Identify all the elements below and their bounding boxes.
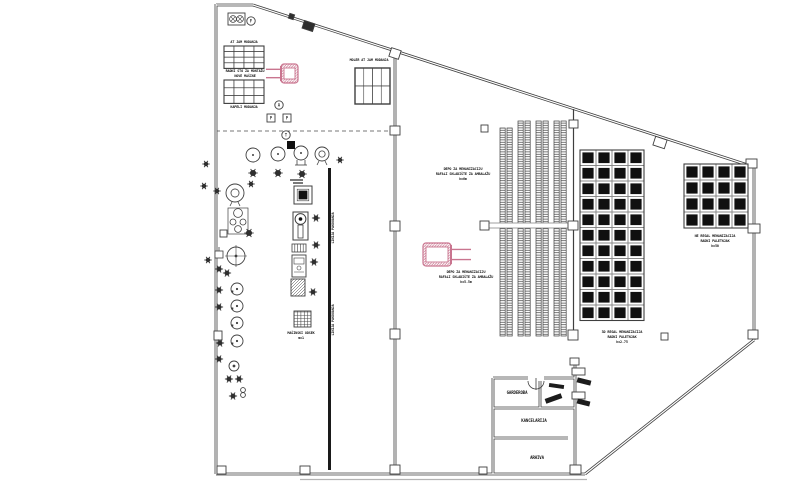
storage-cell-fill — [614, 276, 625, 287]
fan-unit-icon — [228, 13, 245, 25]
machine-notch-circle-icon — [231, 317, 243, 329]
storage-cell-fill — [702, 198, 713, 209]
grid-cell — [254, 88, 264, 96]
grid-cell — [234, 88, 244, 96]
pallet-rack — [543, 121, 548, 336]
machine-gear-icon — [244, 229, 253, 237]
storage-cell-fill — [630, 230, 641, 241]
storage-cell-fill — [598, 199, 609, 210]
storage-cell-fill — [702, 214, 713, 225]
storage-cell-fill — [686, 214, 697, 225]
column-marker — [300, 466, 310, 474]
grid-cell — [244, 52, 254, 58]
floor-plan-canvas: FAPPTAT JAM MODANJARADNI STO ZA MONTAŽUN… — [0, 0, 800, 500]
floor-label: RADNI PALETNJAK — [700, 239, 730, 243]
column-marker — [661, 333, 668, 340]
grid-cell — [234, 52, 244, 58]
forklift-icon — [423, 243, 471, 266]
storage-cell-fill — [598, 168, 609, 179]
floor-label: AT JAM MODANJA — [230, 40, 257, 44]
forklift-icon — [266, 64, 298, 83]
storage-cell-fill — [582, 307, 593, 318]
machine-notch-circle-icon — [231, 335, 243, 347]
machine-gear-icon — [235, 375, 243, 382]
storage-cell-fill — [630, 245, 641, 256]
floor-label: h=50 — [711, 244, 719, 248]
grid-cell — [224, 46, 234, 52]
machine-gear-icon — [223, 269, 231, 276]
storage-cell-fill — [614, 245, 625, 256]
column-marker — [389, 48, 401, 60]
grid-cell — [224, 96, 234, 104]
grid-cell — [254, 57, 264, 63]
column-marker — [570, 465, 581, 474]
grid-cell — [254, 80, 264, 88]
machine-notch-circle-icon — [231, 300, 243, 312]
storage-cell-fill — [582, 199, 593, 210]
storage-cell-fill — [614, 199, 625, 210]
storage-cell-fill — [598, 245, 609, 256]
storage-cell-fill — [630, 168, 641, 179]
storage-cell-fill — [598, 230, 609, 241]
storage-cell-fill — [582, 292, 593, 303]
circled-letter-icon: T — [282, 131, 290, 139]
pallet-rack — [554, 121, 559, 336]
storage-cell-fill — [614, 168, 625, 179]
machines-layer: FAPPT — [200, 13, 343, 400]
storage-cell-fill — [582, 261, 593, 272]
column-marker — [480, 221, 489, 230]
grid-cell — [244, 57, 254, 63]
machine-gear-icon — [297, 170, 306, 178]
grid-cell — [254, 52, 264, 58]
storage-cell-fill — [630, 276, 641, 287]
storage-cell-fill — [718, 214, 729, 225]
door-leaf — [577, 377, 592, 385]
machine-gear-icon — [229, 392, 237, 399]
storage-grid-window — [355, 68, 390, 104]
machine-circle-icon — [271, 147, 285, 161]
floor-label: WC — [554, 395, 558, 399]
machine-grid-icon — [294, 311, 311, 327]
circled-letter-icon: A — [275, 101, 283, 109]
floor-label: KAPELI MODANJA — [230, 105, 257, 109]
storage-cell-fill — [582, 168, 593, 179]
storage-cell-fill — [734, 166, 745, 177]
storage-cell-fill — [630, 292, 641, 303]
wall-core — [585, 340, 754, 474]
grid-cell — [244, 46, 254, 52]
grid-cell — [224, 57, 234, 63]
machine-striped-icon — [292, 244, 306, 252]
storage-grid-pallet-top-a — [224, 46, 264, 68]
machine-gear-icon — [273, 169, 282, 177]
storage-cell-fill — [598, 152, 609, 163]
floor-label: NOVE MAŠINE — [234, 73, 255, 78]
grid-cell — [234, 96, 244, 104]
storage-cell-fill — [598, 183, 609, 194]
floor-label: MAŠINSKI ODSEK — [287, 330, 315, 335]
grid-cell — [244, 88, 254, 96]
dark-square-icon — [287, 141, 295, 149]
machine-stand-circle-icon — [294, 146, 308, 165]
pallet-rack — [536, 121, 541, 336]
column-marker — [390, 221, 400, 231]
column-marker — [568, 221, 578, 230]
floor-label: 3D REGAL MEHANIZACIJA — [602, 330, 643, 334]
machine-circle-icon — [246, 148, 260, 162]
storage-cell-fill — [582, 276, 593, 287]
storage-cell-fill — [734, 214, 745, 225]
column-marker — [390, 126, 400, 135]
storage-cell-fill — [686, 182, 697, 193]
column-marker — [572, 392, 585, 399]
storage-cell-fill — [614, 214, 625, 225]
floor-label: m=1 — [298, 336, 304, 340]
floor-label: GARDEROBA — [507, 390, 528, 395]
machine-mixer-icon — [293, 212, 308, 240]
circled-letter-icon: F — [247, 17, 255, 25]
storage-cell-fill — [702, 182, 713, 193]
machine-double-circle-icon — [226, 184, 244, 206]
column-marker — [568, 330, 578, 340]
storage-cell-fill — [734, 198, 745, 209]
door-leaf — [577, 399, 591, 407]
floor-label: h=5.5m — [460, 280, 472, 284]
grid-cell — [224, 80, 234, 88]
machine-gear-icon — [202, 161, 209, 167]
pallet-racks-layer — [500, 121, 566, 336]
machine-gear-icon — [312, 214, 320, 221]
rack-beam — [483, 223, 575, 228]
grid-cell — [234, 46, 244, 52]
storage-cell-fill — [686, 166, 697, 177]
machine-assembly-icon — [228, 208, 248, 234]
floor-label: DEPO ZA MEHANIZACIJU — [447, 270, 486, 274]
grid-cell — [244, 80, 254, 88]
storage-cell-fill — [718, 182, 729, 193]
floor-label: RADNI STO ZA MONTAŽU — [226, 68, 265, 73]
column-marker — [572, 368, 585, 375]
door-arc-icon — [528, 381, 536, 389]
pallet-rack — [561, 121, 566, 336]
grid-cell — [244, 96, 254, 104]
grid-cell — [244, 63, 254, 69]
storage-cell-fill — [630, 183, 641, 194]
machine-gear-icon — [200, 183, 207, 189]
storage-cell-fill — [582, 183, 593, 194]
boxed-letter-icon: P — [283, 114, 291, 122]
grid-cell — [234, 57, 244, 63]
door-leaf — [549, 383, 564, 389]
machine-gear-icon — [204, 257, 211, 263]
floor-label: LINIJA PAKOVANJA — [331, 212, 335, 243]
grid-cell — [224, 88, 234, 96]
column-marker — [748, 330, 758, 339]
small-square-icon — [220, 230, 227, 237]
storage-cell-fill — [614, 261, 625, 272]
storage-cell-fill — [630, 199, 641, 210]
machine-notch-circle-icon — [231, 283, 243, 295]
floor-label: h=2.75 — [616, 340, 628, 344]
storage-cell-fill — [614, 292, 625, 303]
column-marker — [481, 125, 488, 132]
machine-dot-circle-icon — [229, 361, 239, 371]
storage-cell-fill — [598, 276, 609, 287]
storage-grid-block-storage-right — [684, 164, 748, 228]
storage-cell-fill — [702, 166, 713, 177]
column-marker — [479, 467, 487, 474]
machine-double-circle-icon — [315, 147, 329, 165]
storage-cell-fill — [598, 261, 609, 272]
floor-label: ARHIVA — [530, 455, 545, 460]
machine-unit-icon — [292, 255, 306, 277]
machine-press-icon — [294, 186, 312, 204]
storage-cell-fill — [582, 152, 593, 163]
machine-gear-icon — [310, 258, 318, 265]
storage-cell-fill — [718, 198, 729, 209]
floor-label: NE REGAL MEHANIZACIJA — [695, 234, 736, 238]
column-marker — [569, 120, 578, 128]
storage-cell-fill — [614, 152, 625, 163]
storage-cell-fill — [598, 292, 609, 303]
grid-cell — [234, 80, 244, 88]
storage-cell-fill — [630, 261, 641, 272]
storage-cell-fill — [734, 182, 745, 193]
column-marker — [288, 13, 294, 19]
floor-label: DEPO ZA MEHANIZACIJU — [444, 167, 483, 171]
pallet-rack — [507, 128, 512, 336]
pallet-rack — [500, 128, 505, 336]
storage-cell-fill — [630, 152, 641, 163]
column-marker — [570, 358, 579, 365]
storage-cell-fill — [598, 214, 609, 225]
storage-cell-fill — [582, 214, 593, 225]
storage-cell-fill — [582, 230, 593, 241]
column-marker — [217, 466, 226, 474]
floor-label: KANCELARIJA — [521, 418, 547, 423]
machine-gear-icon — [309, 288, 317, 295]
machine-hatched-icon — [291, 279, 305, 296]
machine-gear-icon — [248, 169, 257, 177]
pallet-rack — [518, 121, 523, 336]
grid-cell — [224, 52, 234, 58]
pallet-rack — [525, 121, 530, 336]
cad-floor-plan: FAPPTAT JAM MODANJARADNI STO ZA MONTAŽUN… — [0, 0, 800, 500]
storage-cell-fill — [686, 198, 697, 209]
column-marker — [390, 329, 400, 339]
double-ring-icon — [241, 388, 246, 398]
storage-cell-fill — [582, 245, 593, 256]
storage-cell-fill — [614, 183, 625, 194]
storage-cell-fill — [630, 307, 641, 318]
floor-label: RAFALI SKLADIŠTE ZA AMBALAŽU — [439, 274, 493, 279]
machine-bars-icon — [290, 180, 303, 183]
floor-label: RAFALI SKLADIŠTE ZA AMBALAŽU — [436, 171, 490, 176]
grid-cell — [224, 63, 234, 69]
floor-label: MOLER AT JAM MODANJA — [350, 58, 389, 62]
small-square-icon — [214, 331, 222, 340]
machine-gear-icon — [312, 241, 320, 248]
storage-cell-fill — [614, 230, 625, 241]
grid-cell — [254, 46, 264, 52]
storage-cell-fill — [614, 307, 625, 318]
grid-cell — [254, 63, 264, 69]
column-marker — [390, 465, 400, 474]
grid-cell — [254, 96, 264, 104]
column-marker — [748, 224, 760, 233]
machine-crosshair-icon — [225, 245, 247, 267]
storage-grid-block-storage-center — [580, 150, 644, 321]
boxed-letter-icon: P — [267, 114, 275, 122]
floor-label: h=6m — [459, 177, 467, 181]
storage-cell-fill — [630, 214, 641, 225]
storage-grid-pallet-top-b — [224, 80, 264, 103]
storage-cell-fill — [718, 166, 729, 177]
machine-gear-icon — [247, 181, 254, 187]
beam-layer — [483, 223, 575, 228]
column-marker — [302, 20, 315, 31]
storage-cell-fill — [598, 307, 609, 318]
floor-label: RADNI PALETNJAK — [607, 335, 637, 339]
machine-gear-icon — [336, 157, 343, 163]
floor-label: LINIJA PAKOVANJA — [331, 304, 335, 335]
machine-gear-icon — [225, 375, 233, 382]
grid-cell — [234, 63, 244, 69]
